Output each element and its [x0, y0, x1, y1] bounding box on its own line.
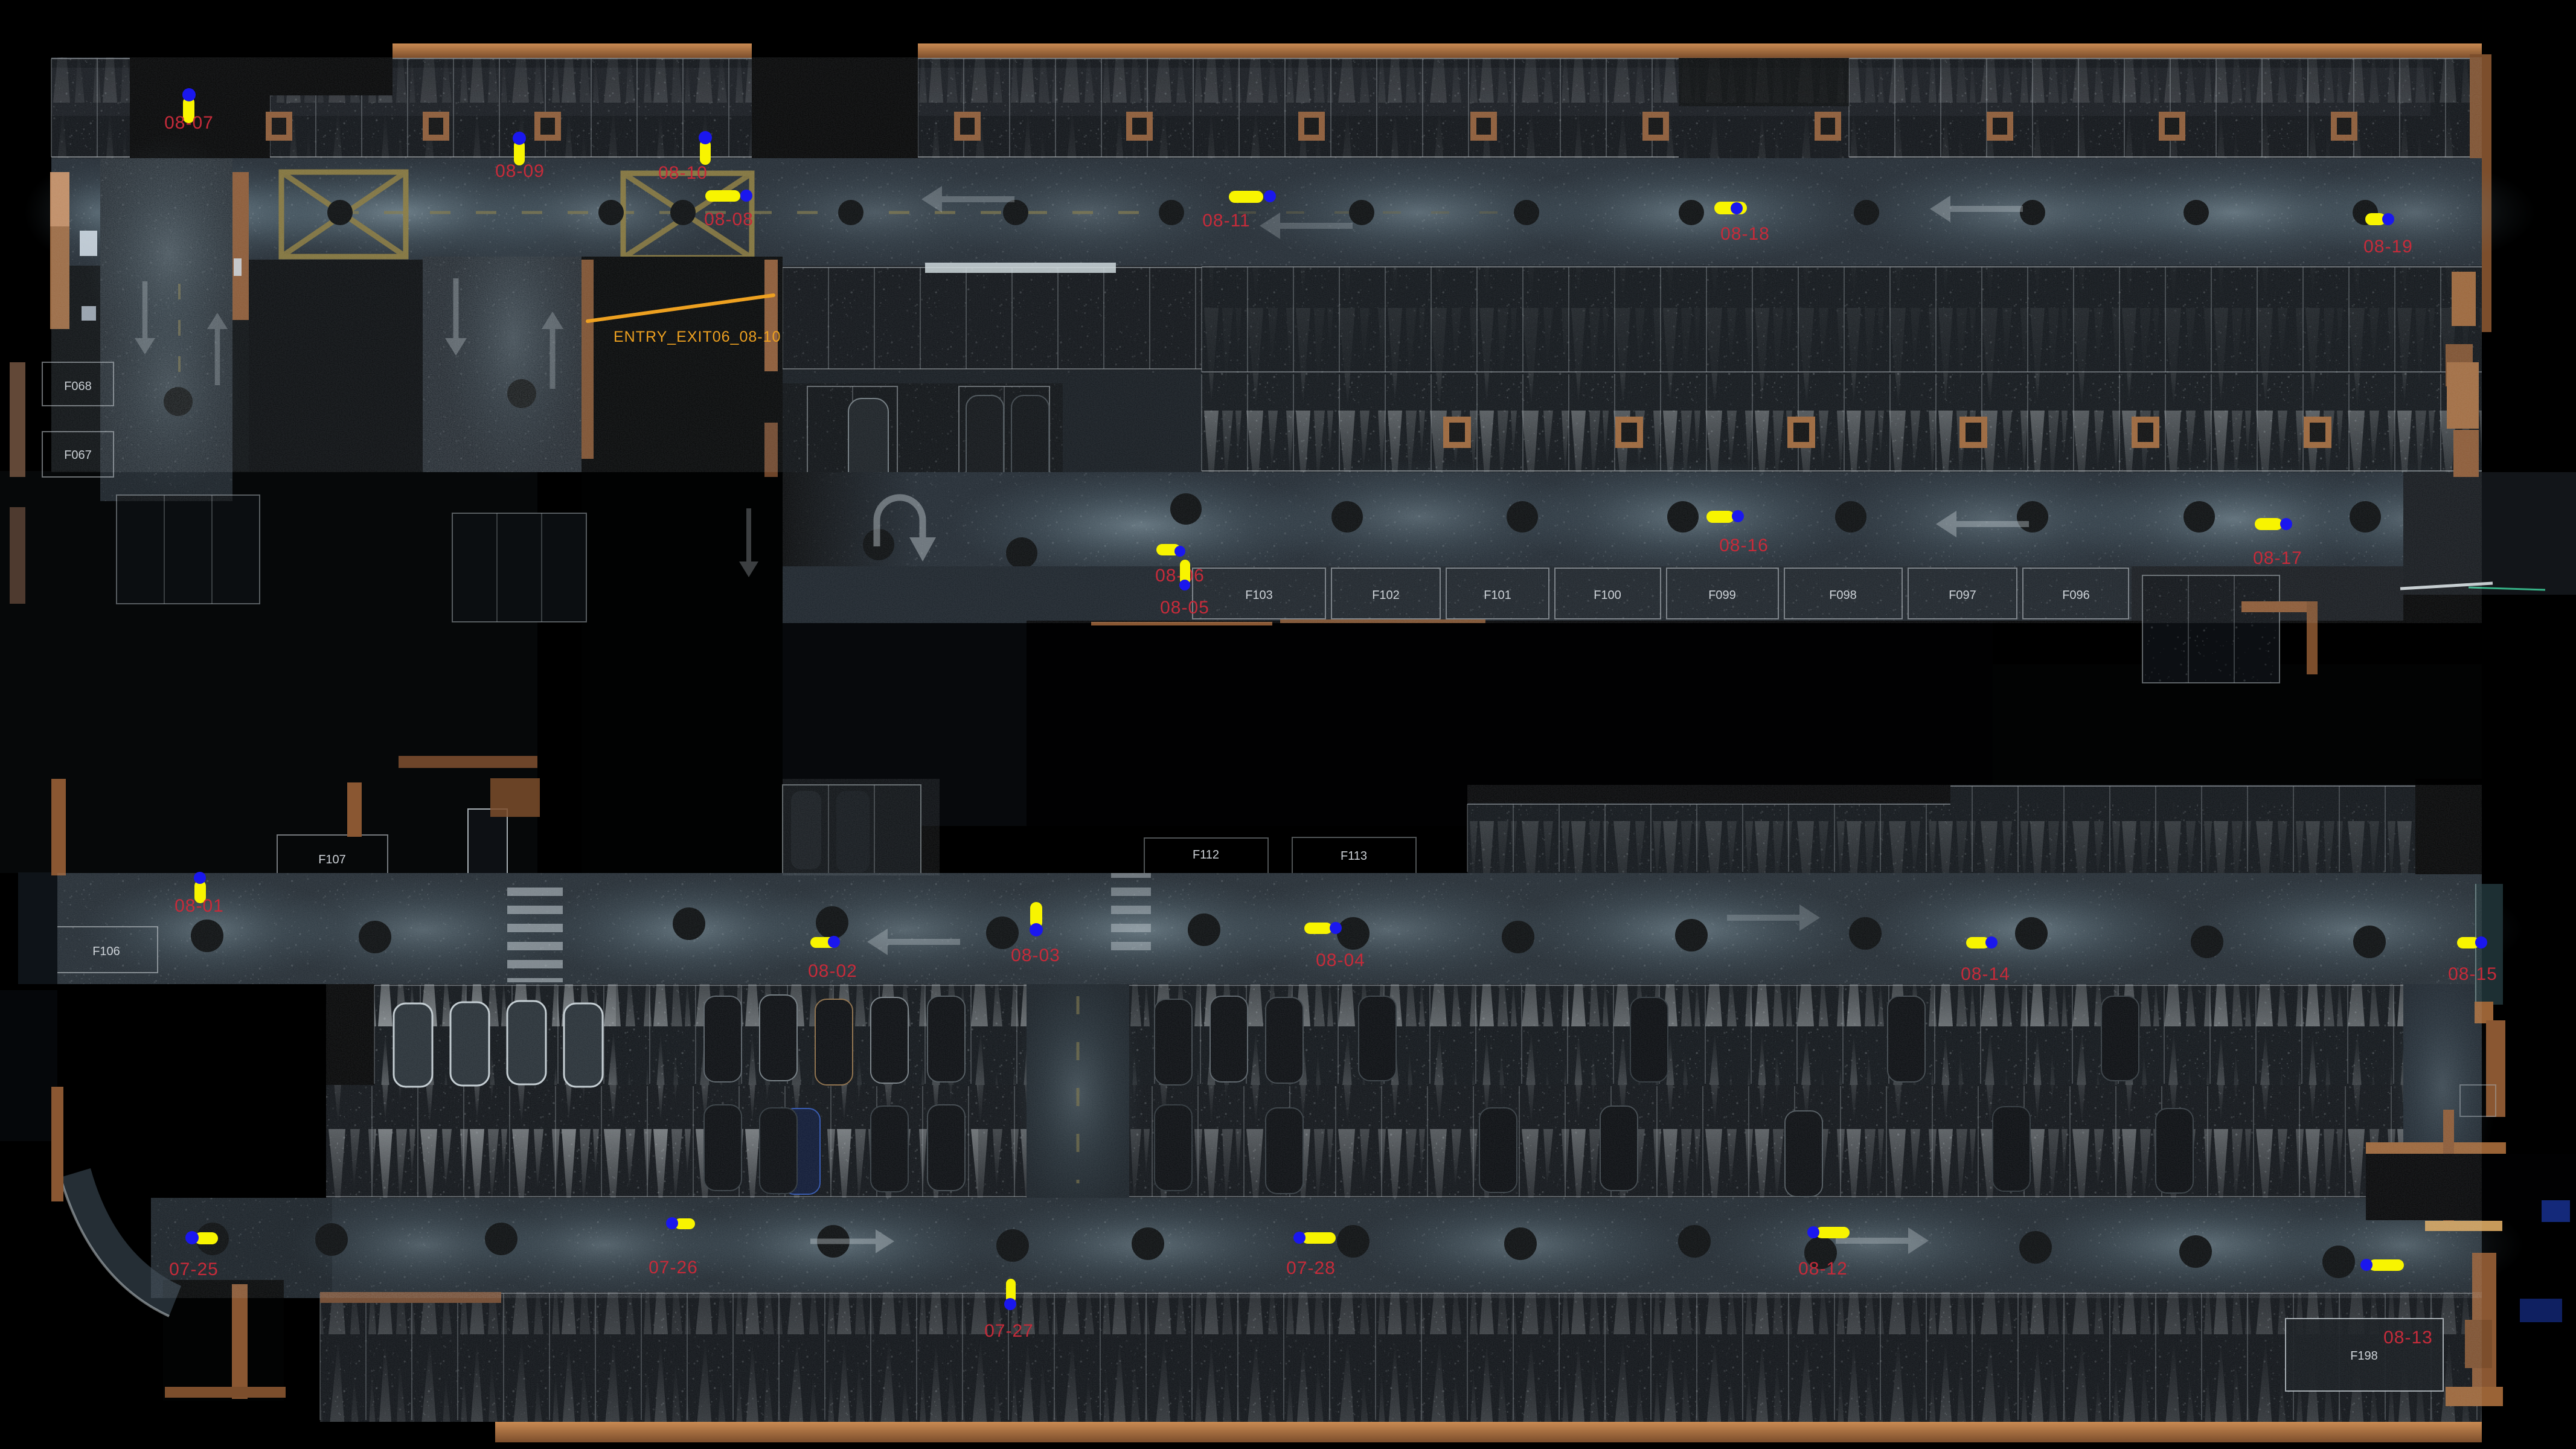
svg-text:08-15: 08-15 [2448, 964, 2498, 984]
svg-text:08-03: 08-03 [1011, 945, 1060, 965]
svg-text:F112: F112 [1193, 848, 1219, 862]
svg-text:08-13: 08-13 [2383, 1328, 2433, 1348]
svg-text:08-01: 08-01 [175, 896, 224, 916]
svg-text:08-16: 08-16 [1719, 536, 1769, 555]
svg-text:07-27: 07-27 [984, 1321, 1034, 1341]
svg-text:08-08: 08-08 [704, 210, 754, 229]
svg-text:08-18: 08-18 [1720, 224, 1770, 244]
svg-text:08-10: 08-10 [658, 163, 708, 183]
svg-text:08-05: 08-05 [1160, 598, 1210, 618]
svg-text:08-17: 08-17 [2253, 548, 2302, 568]
svg-text:08-02: 08-02 [808, 961, 857, 981]
svg-text:07-26: 07-26 [649, 1258, 698, 1278]
svg-text:08-04: 08-04 [1316, 950, 1365, 970]
svg-text:07-28: 07-28 [1286, 1258, 1336, 1278]
svg-text:F107: F107 [318, 853, 346, 866]
svg-text:08-19: 08-19 [2363, 237, 2413, 257]
svg-text:F113: F113 [1341, 849, 1367, 863]
svg-text:07-25: 07-25 [169, 1259, 219, 1279]
svg-text:08-12: 08-12 [1798, 1259, 1848, 1279]
svg-text:08-11: 08-11 [1202, 211, 1251, 231]
svg-text:08-07: 08-07 [164, 113, 214, 133]
svg-text:08-14: 08-14 [1961, 964, 2010, 984]
svg-text:08-09: 08-09 [495, 161, 545, 181]
